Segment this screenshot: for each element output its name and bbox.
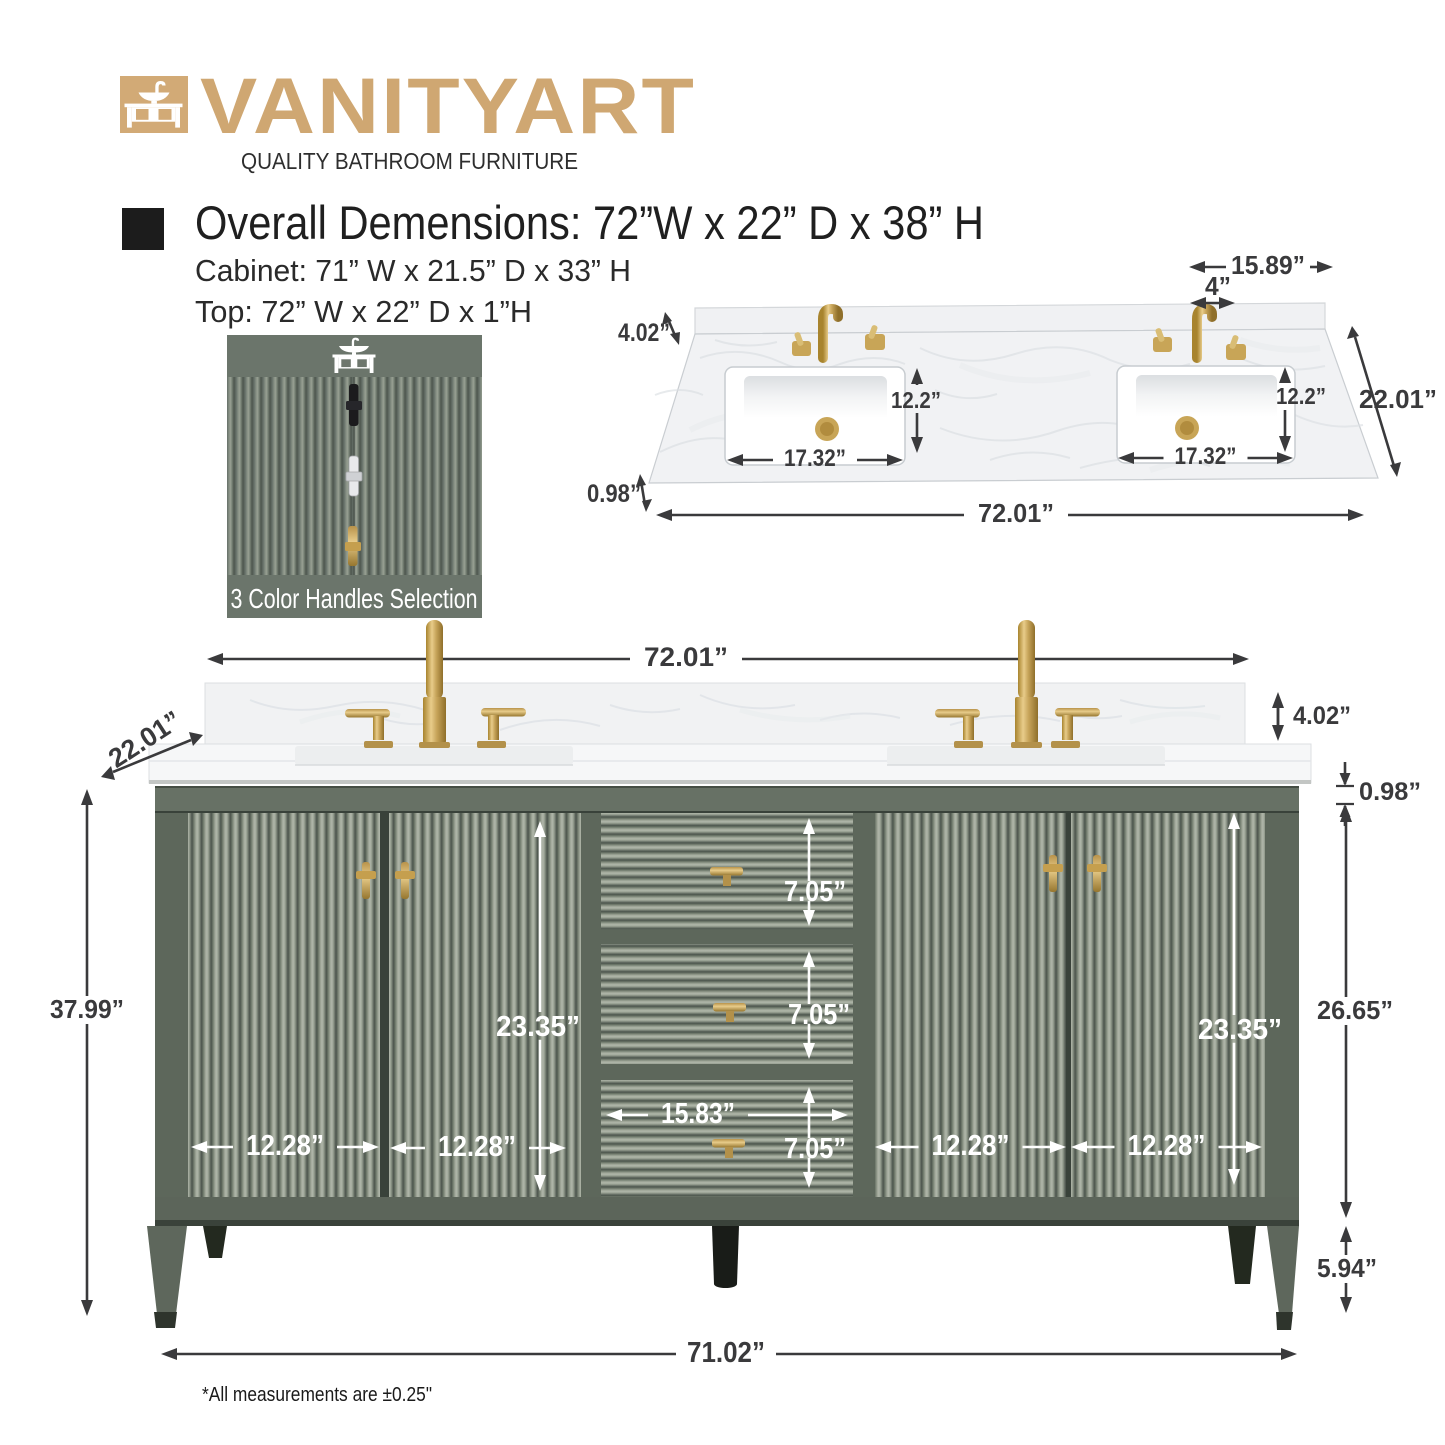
svg-text:26.65”: 26.65” [1317,995,1393,1025]
svg-text:15.89”: 15.89” [1231,250,1305,280]
svg-text:Cabinet: 71” W x 21.5” D x 33”: Cabinet: 71” W x 21.5” D x 33” H [195,253,631,288]
svg-text:VANITYART: VANITYART [200,61,696,150]
svg-text:7.05”: 7.05” [788,999,850,1031]
svg-text:23.35”: 23.35” [1198,1014,1282,1046]
svg-text:15.83”: 15.83” [661,1098,735,1130]
svg-text:12.28”: 12.28” [1128,1130,1206,1162]
svg-text:0.98”: 0.98” [1359,778,1421,806]
svg-text:22.01”: 22.01” [1359,384,1437,414]
svg-text:7.05”: 7.05” [784,876,846,908]
svg-text:QUALITY BATHROOM FURNITURE: QUALITY BATHROOM FURNITURE [241,148,578,174]
svg-text:3 Color Handles Selection: 3 Color Handles Selection [231,583,478,614]
svg-text:72.01”: 72.01” [644,642,728,672]
svg-text:71.02”: 71.02” [687,1337,765,1369]
svg-text:23.35”: 23.35” [496,1011,580,1043]
svg-text:Top: 72” W x 22” D x 1”H: Top: 72” W x 22” D x 1”H [195,294,532,329]
svg-text:12.2”: 12.2” [891,387,941,413]
svg-text:Overall Demensions: 72”W x 22”: Overall Demensions: 72”W x 22” D x 38” H [195,196,984,249]
svg-text:4.02”: 4.02” [618,319,670,347]
svg-text:7.05”: 7.05” [784,1133,846,1165]
svg-text:37.99”: 37.99” [50,994,124,1024]
svg-text:72.01”: 72.01” [978,498,1054,528]
svg-text:4.02”: 4.02” [1293,702,1351,730]
svg-text:*All measurements are ±0.25": *All measurements are ±0.25" [202,1384,432,1406]
svg-text:4”: 4” [1205,271,1231,301]
svg-text:0.98”: 0.98” [587,480,641,508]
svg-text:12.28”: 12.28” [246,1130,324,1162]
svg-text:17.32”: 17.32” [1175,443,1237,470]
svg-text:12.28”: 12.28” [932,1130,1010,1162]
svg-text:12.2”: 12.2” [1276,383,1326,409]
svg-text:12.28”: 12.28” [438,1131,516,1163]
svg-text:5.94”: 5.94” [1317,1253,1377,1283]
svg-text:17.32”: 17.32” [784,445,846,472]
